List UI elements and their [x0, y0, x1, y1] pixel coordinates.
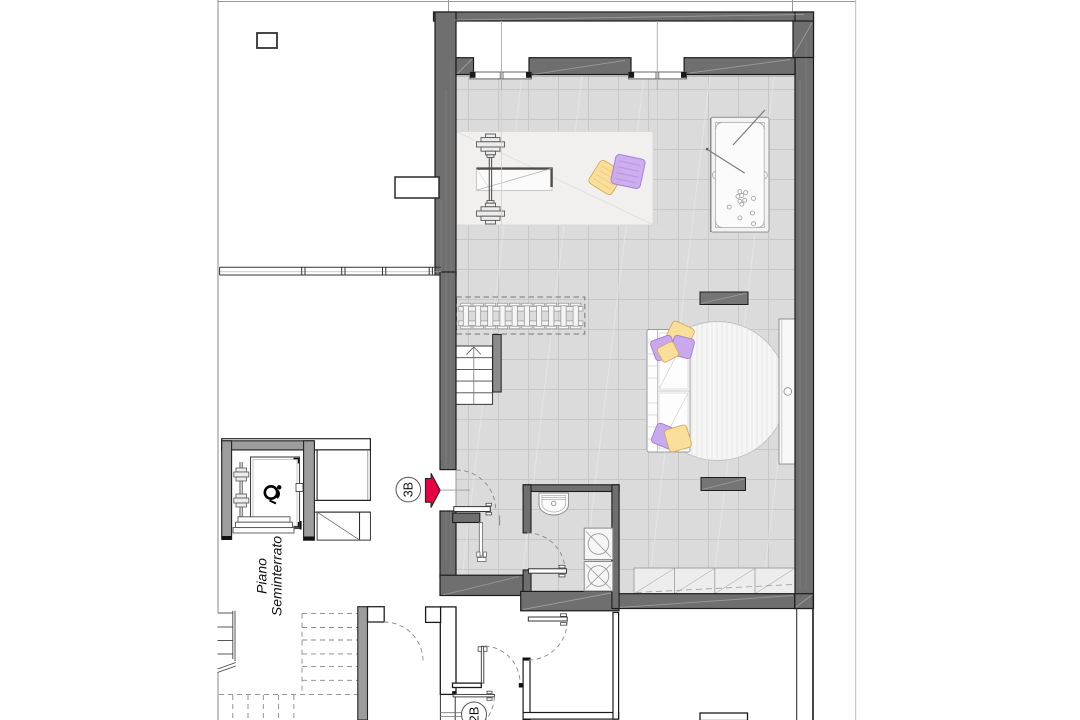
- svg-text:2B: 2B: [467, 707, 482, 720]
- svg-text:Piano: Piano: [254, 558, 270, 594]
- svg-text:Seminterrato: Seminterrato: [269, 536, 285, 616]
- svg-text:3B: 3B: [402, 482, 416, 497]
